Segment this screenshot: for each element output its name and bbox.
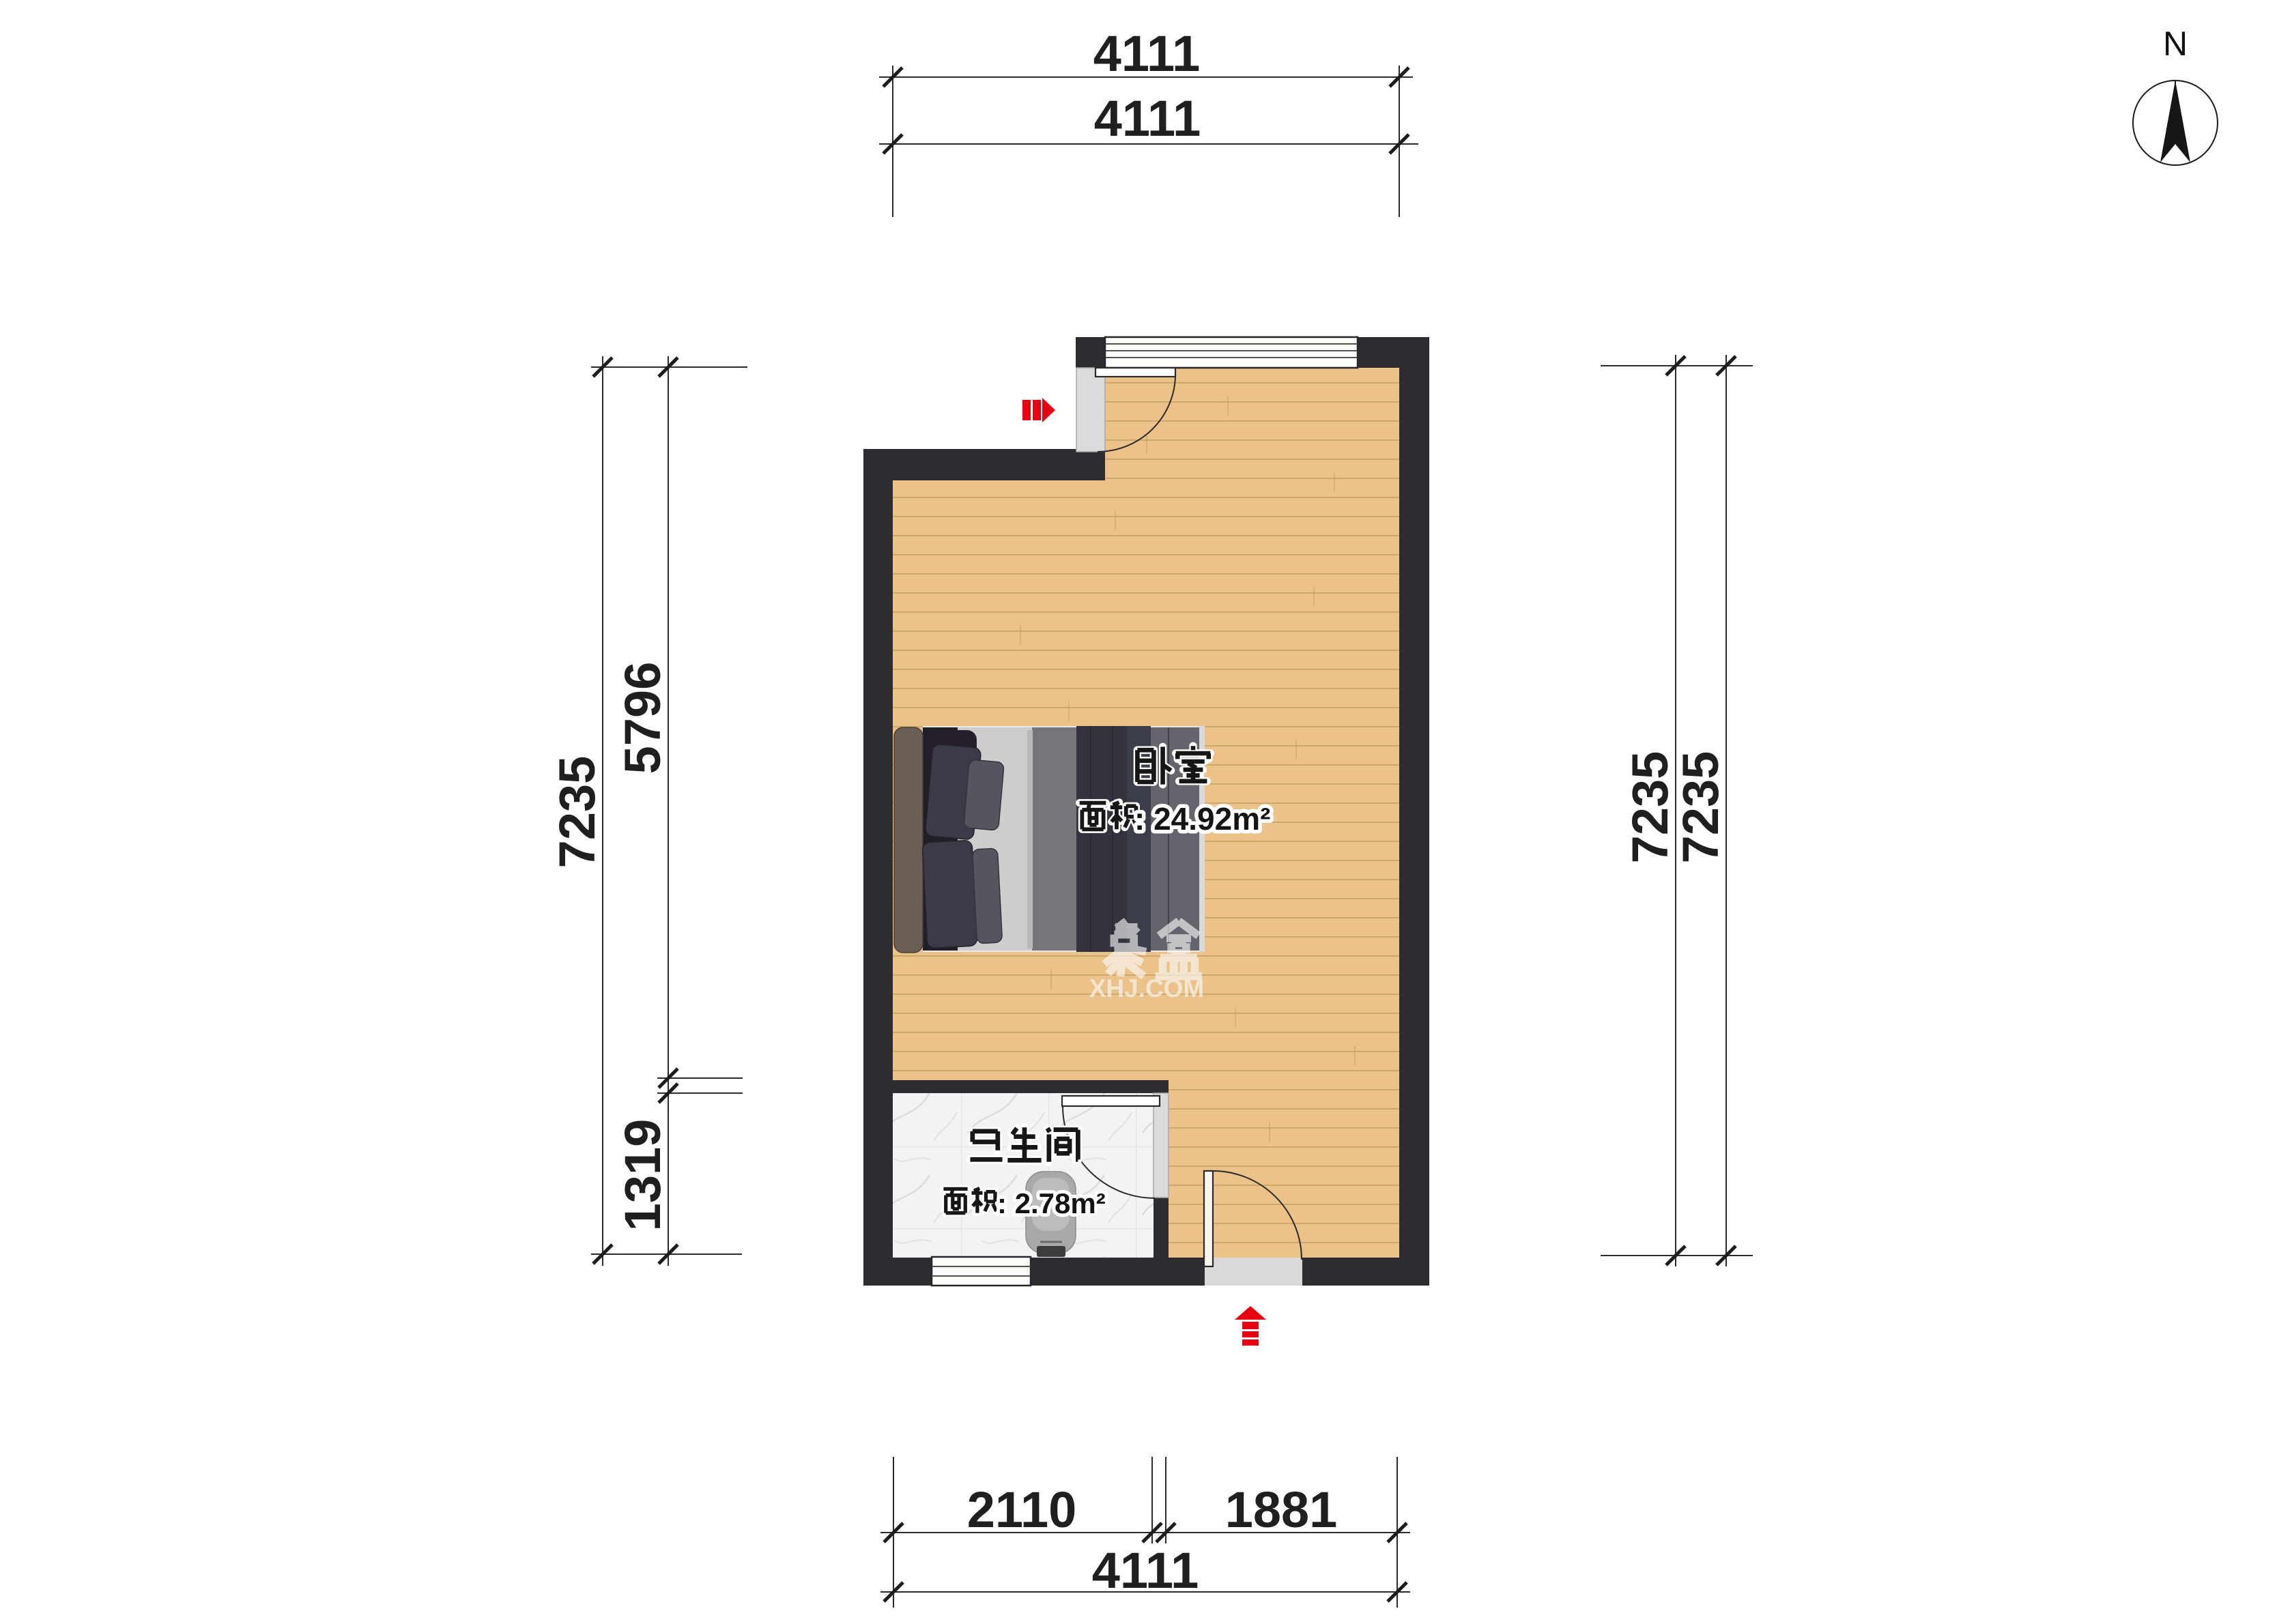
svg-text:: 2.78m²: : 2.78m² (997, 1187, 1106, 1219)
svg-text:4111: 4111 (1094, 90, 1201, 147)
svg-text:7235: 7235 (1672, 751, 1729, 864)
svg-text:: 24.92m²: : 24.92m² (1134, 801, 1270, 837)
svg-text:7235: 7235 (549, 756, 605, 869)
svg-text:2110: 2110 (967, 1481, 1077, 1538)
svg-text:XHJ.COM: XHJ.COM (1089, 974, 1205, 1002)
svg-text:4111: 4111 (1092, 1542, 1199, 1599)
svg-text:1319: 1319 (614, 1119, 671, 1232)
svg-text:1881: 1881 (1225, 1481, 1338, 1538)
svg-text:N: N (2163, 25, 2188, 63)
svg-text:7235: 7235 (1622, 751, 1678, 864)
svg-text:4111: 4111 (1093, 25, 1200, 82)
svg-text:5796: 5796 (614, 662, 671, 774)
